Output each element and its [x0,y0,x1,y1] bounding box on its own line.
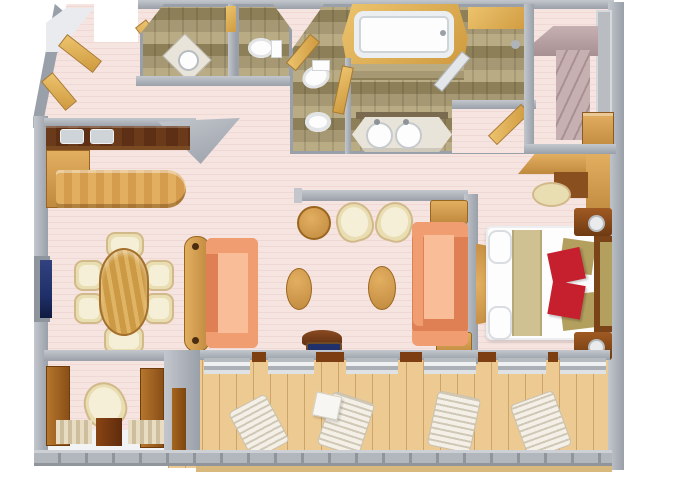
nook-door-jamb [96,418,122,446]
shower-head-icon [511,40,520,49]
round-table [297,206,331,240]
veranda-railing [34,450,612,466]
door-transom [548,352,558,362]
faucet-left-icon [374,119,380,125]
bar-sink-icon [90,129,114,144]
sofa-seat [218,252,250,334]
wall-closet-south [524,144,616,154]
dining-table [99,248,149,336]
second-sofa-front [413,230,423,326]
curved-bar-counter [56,170,186,208]
closet-shelf-wall [596,10,612,114]
bed-runner [512,230,542,336]
nightstand-lamp-icon [588,215,605,232]
veranda-table [312,392,342,421]
oval-coffee-table [286,268,312,310]
wall-below-guest-baths [136,76,294,86]
second-sofa-arm [412,331,468,346]
faucet-right-icon [403,119,409,125]
oval-coffee-table [368,266,396,310]
nook-door [172,388,186,454]
bidet-icon [305,112,331,132]
sink-right-icon [395,122,422,149]
red-pillow [547,280,585,319]
bathtub-icon [354,11,454,58]
toilet-tank [271,40,282,58]
vanity-desk-side [586,154,610,216]
entry-door-opening [94,0,138,42]
door-transom [400,352,422,362]
sliding-door-sill [346,358,398,374]
door-transom [252,352,266,362]
headboard-cushion [600,242,612,326]
sliding-door-sill [268,358,314,374]
sofa-front [248,246,258,340]
bar-sink-icon [60,129,84,144]
wall-wood-cap [226,6,237,32]
second-sofa-seat [424,235,454,319]
sliding-door-sill [498,358,546,374]
door-transom [478,352,496,362]
wall-hall-cap [294,188,302,203]
tub-faucet-icon [440,30,446,36]
bed-foot-pillow [488,230,512,264]
bed-foot-pillow [488,306,512,340]
wall-closet-west [524,4,534,152]
sliding-door-sill [424,358,476,374]
desk-stool [532,182,571,207]
console-knob-icon [192,243,199,250]
nook-sliding-sill [56,420,92,444]
shower-wood-band [468,7,530,29]
side-table [430,200,468,224]
deck-edge [196,466,612,472]
sliding-door-sill [204,358,250,374]
floor-plan [0,0,680,486]
nook-sliding-sill [128,420,164,444]
console-knob-icon [192,337,199,344]
sink-basin-icon [178,50,199,71]
master-toilet-tank [312,60,330,71]
wall-nook-north [44,350,170,361]
sink-left-icon [366,122,393,149]
sliding-door-sill [560,358,606,374]
tv-icon [40,260,52,318]
door-transom [316,352,344,362]
